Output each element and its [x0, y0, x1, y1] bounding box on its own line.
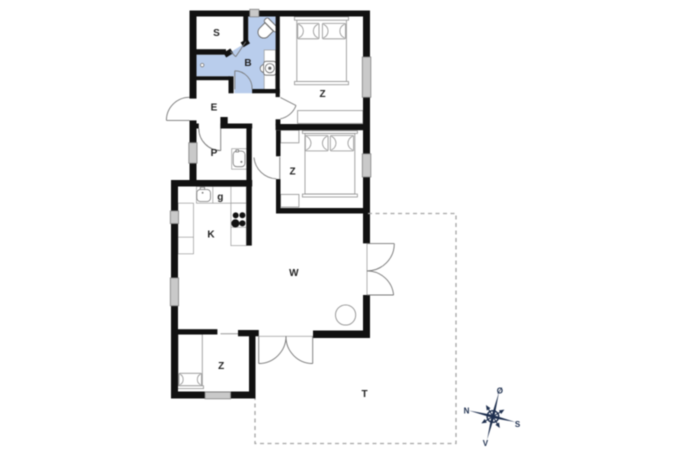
svg-text:B: B [244, 58, 251, 69]
svg-text:N: N [464, 407, 470, 416]
svg-text:Ø: Ø [497, 386, 503, 395]
svg-text:Z: Z [290, 167, 296, 178]
svg-text:W: W [289, 268, 299, 279]
svg-text:S: S [515, 420, 521, 429]
svg-text:V: V [483, 439, 489, 448]
svg-text:E: E [211, 103, 218, 114]
svg-text:Z: Z [319, 89, 325, 100]
svg-text:Z: Z [218, 361, 224, 372]
svg-text:P: P [211, 148, 218, 159]
svg-text:K: K [207, 229, 215, 240]
svg-text:S: S [213, 28, 220, 39]
svg-text:T: T [362, 389, 368, 400]
svg-text:g: g [217, 192, 223, 203]
